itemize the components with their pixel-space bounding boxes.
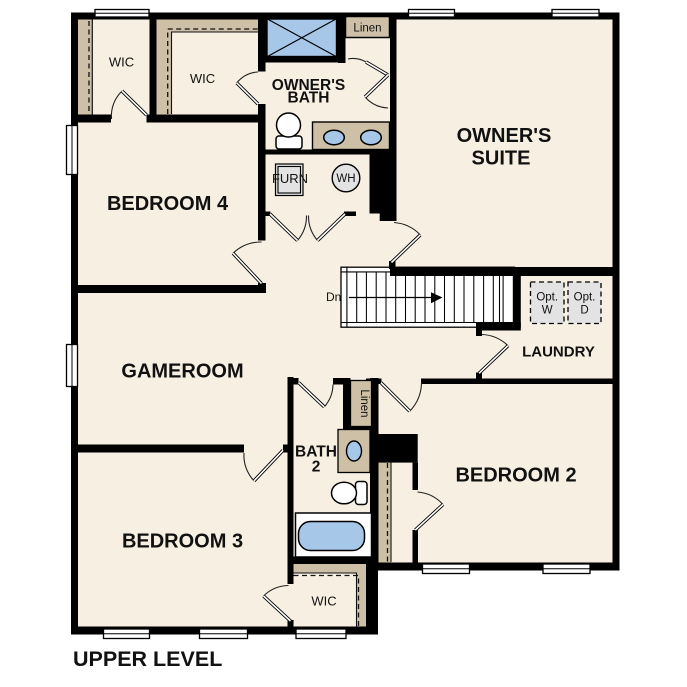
svg-text:GAMEROOM: GAMEROOM — [121, 361, 243, 383]
svg-text:BEDROOM 2: BEDROOM 2 — [455, 465, 576, 487]
svg-text:UPPER LEVEL: UPPER LEVEL — [73, 647, 222, 671]
svg-text:WIC: WIC — [311, 594, 336, 609]
svg-text:OWNER'S: OWNER'S — [457, 125, 552, 147]
svg-text:FURN: FURN — [272, 171, 308, 186]
svg-text:BEDROOM 3: BEDROOM 3 — [122, 531, 243, 553]
svg-text:WH: WH — [336, 173, 355, 185]
svg-text:BEDROOM 4: BEDROOM 4 — [107, 193, 229, 215]
svg-text:SUITE: SUITE — [472, 148, 531, 170]
svg-text:D: D — [580, 305, 588, 317]
svg-text:Opt.: Opt. — [536, 292, 558, 304]
svg-text:LAUNDRY: LAUNDRY — [522, 344, 595, 361]
svg-text:2: 2 — [312, 459, 321, 476]
svg-text:BATH: BATH — [288, 90, 330, 107]
svg-text:Opt.: Opt. — [574, 292, 596, 304]
svg-text:WIC: WIC — [190, 71, 215, 86]
svg-text:WIC: WIC — [109, 55, 134, 70]
svg-text:W: W — [542, 305, 553, 317]
svg-text:Linen: Linen — [358, 389, 370, 417]
svg-text:Linen: Linen — [353, 23, 381, 35]
svg-text:Dn: Dn — [326, 290, 341, 304]
